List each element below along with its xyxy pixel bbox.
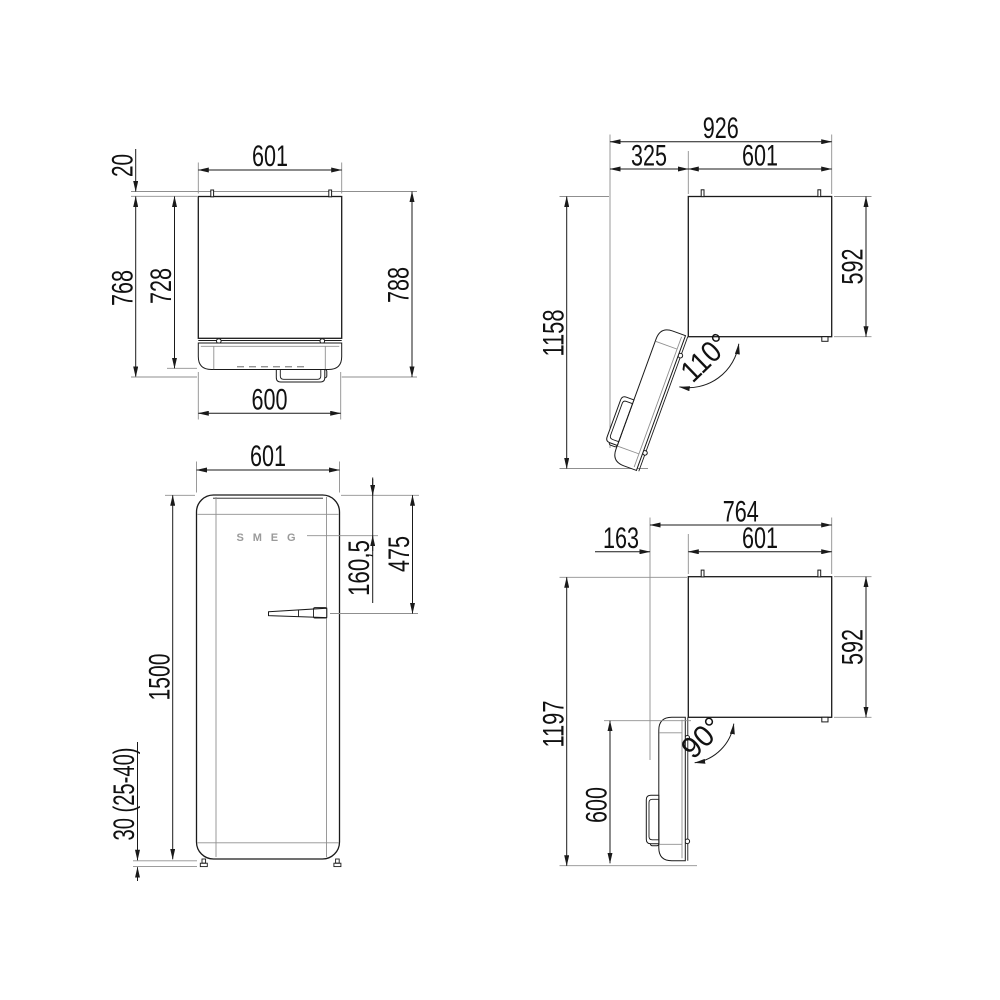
dim-door-projection: 163 (603, 522, 639, 555)
dim-width: 601 (250, 440, 286, 473)
dim-depth-total: 1158 (537, 310, 570, 357)
foot-base (200, 863, 207, 866)
fridge-front-outline (197, 495, 340, 859)
view-door-open-110: 926 325 601 1158 592 110° (537, 112, 871, 472)
hinge-pin (818, 190, 821, 197)
open-door-110 (600, 322, 690, 472)
dim-depth-body: 728 (145, 268, 178, 304)
hinge-plate (822, 717, 828, 722)
closed-door (198, 339, 341, 382)
hinge-pin (701, 190, 704, 197)
dim-depth-door: 768 (106, 270, 139, 306)
foot (336, 859, 340, 863)
dim-width-door: 600 (252, 384, 288, 417)
cabinet-body-top (688, 577, 831, 718)
dim-depth-body: 592 (837, 249, 870, 285)
hinge-plate (822, 337, 828, 342)
dim-door-length: 600 (581, 787, 614, 823)
dim-depth-total: 1197 (537, 701, 570, 748)
dim-height: 1500 (143, 654, 176, 701)
view-front: SMEG 601 1500 160,5 475 30 (25-40) (108, 440, 419, 881)
foot-base (334, 863, 341, 866)
dim-door-projection: 325 (631, 139, 667, 172)
hinge-pin (329, 190, 332, 197)
dim-feet-height: 30 (25-40) (108, 748, 141, 841)
hinge-pin (701, 570, 704, 577)
view-door-open-90: 764 163 601 1197 592 600 90° (537, 495, 871, 865)
hinge-pin (211, 190, 214, 197)
foot (202, 859, 206, 863)
smeg-logo: SMEG (237, 532, 306, 544)
dim-depth-total: 788 (383, 267, 416, 303)
dim-width-top: 601 (252, 140, 288, 173)
cabinet-body-top (688, 197, 831, 337)
view-top-closed: 601 20 768 728 788 600 (106, 140, 417, 419)
hinge-pin (818, 570, 821, 577)
dim-rear-gap: 20 (106, 154, 139, 177)
dim-logo-offset: 160,5 (343, 540, 376, 596)
refrigerator-dimension-drawing: 601 20 768 728 788 600 926 325 (0, 0, 1000, 1000)
cabinet-body-top (198, 197, 341, 339)
dim-width-total: 926 (703, 112, 739, 145)
dim-width-body: 601 (742, 522, 778, 555)
dim-depth-body: 592 (837, 629, 870, 665)
dim-width-body: 601 (742, 139, 778, 172)
dim-handle-offset: 475 (383, 536, 416, 572)
dimension-drawing-page: 601 20 768 728 788 600 926 325 (0, 0, 1000, 1000)
